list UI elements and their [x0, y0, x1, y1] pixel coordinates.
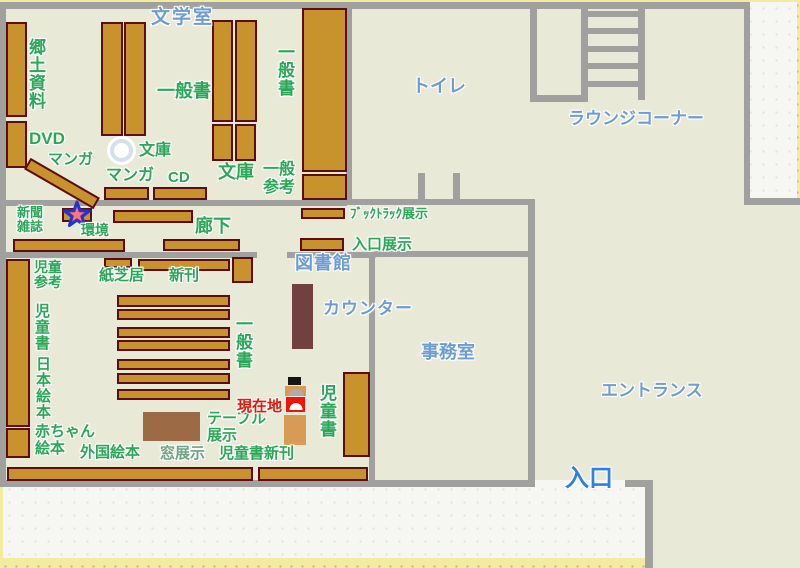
wall: [460, 199, 530, 205]
marker-black: [288, 377, 301, 385]
label-new-books: 新刊: [169, 268, 199, 285]
label-childrens-new-books: 児童書新刊: [219, 446, 294, 463]
label-foreign-picture-books: 外国絵本: [80, 445, 140, 462]
label-entrance-door: 入口: [565, 466, 613, 491]
wall: [530, 2, 537, 102]
label-lounge-corner: ラウンジコーナー: [568, 110, 704, 128]
label-dvd: DVD: [29, 130, 65, 149]
shelf-childrens-right: [343, 372, 370, 457]
label-general-books-top: 一般書: [157, 82, 211, 102]
wall: [6, 200, 347, 206]
label-childrens-books-right: 児童書: [318, 384, 335, 438]
label-kamishibai: 紙芝居: [99, 268, 144, 285]
shelf-manga: [104, 187, 149, 200]
label-manga-lower: マンガ: [106, 167, 154, 185]
wall: [352, 199, 420, 205]
label-booktruck-display: ﾌﾞｯｸﾄﾗｯｸ展示: [350, 207, 428, 221]
shelf-window: [258, 467, 368, 481]
library-floor-map: 郷土資料 DVD マンガ 一般書 文庫 マンガ CD 文庫 一般参考 一般書 新…: [0, 0, 800, 568]
wall: [418, 199, 460, 205]
shelf-entrance-display: [300, 238, 344, 251]
label-entrance-hall: エントランス: [601, 382, 703, 400]
shelf-row: [117, 309, 230, 320]
shelf-small: [232, 257, 253, 283]
stair-step: [588, 46, 638, 52]
label-bunko-pillar: 文庫: [139, 142, 171, 160]
label-kankyo: 環境: [81, 223, 109, 238]
shelf-general-books: [101, 22, 123, 136]
shelf-bunko: [235, 20, 257, 122]
label-current-location: 現在地: [237, 395, 282, 416]
shelf-baby-books: [6, 428, 30, 458]
stair-step: [588, 28, 638, 34]
shelf-dvd: [6, 121, 27, 168]
shelf-kyodo-shiryo: [6, 22, 27, 117]
shelf-cd: [153, 187, 207, 200]
label-corridor: 廊下: [195, 217, 231, 236]
shelf-booktruck-display: [301, 208, 345, 219]
label-office: 事務室: [421, 343, 475, 362]
shelf-bunko: [212, 124, 233, 161]
wall: [744, 198, 800, 205]
label-general-books-right: 一般書: [276, 43, 293, 97]
label-manga-upper: マンガ: [48, 152, 93, 169]
floor-entrance-hall: [535, 198, 800, 480]
marker-white-dome: [289, 403, 302, 410]
office-room-outline: [369, 251, 535, 487]
shelf-general-books: [124, 22, 146, 136]
shelf-general-books-right: [302, 8, 347, 172]
shelf-row: [117, 389, 230, 400]
counter-desk: [292, 284, 313, 349]
stair-step: [588, 81, 638, 87]
shelf-bunko: [212, 20, 233, 122]
wall: [744, 2, 750, 205]
marker-gray-dome: [288, 389, 303, 396]
shelf-childrens-left: [6, 259, 30, 427]
label-toilet: トイレ: [412, 77, 466, 96]
shelf-row: [117, 359, 230, 370]
label-window-display: 窓展示: [160, 446, 205, 463]
shelf-row: [117, 373, 230, 384]
shelf-window: [7, 467, 253, 481]
stair-step: [588, 11, 638, 17]
stair-rail: [638, 2, 645, 100]
shelf-general-reference: [302, 174, 347, 200]
stair-rail: [581, 2, 588, 100]
label-general-books-childrens: 一般書: [234, 315, 251, 369]
current-location-box: [286, 397, 305, 412]
stair-step: [588, 63, 638, 69]
wall: [645, 480, 653, 568]
label-cd: CD: [168, 170, 190, 187]
label-general-reference: 一般参考: [263, 161, 298, 196]
label-counter: カウンター: [323, 300, 413, 318]
label-newspaper-magazine: 新聞雑誌: [17, 206, 46, 235]
floor-entrance-lower: [653, 480, 800, 568]
label-bunko: 文庫: [218, 163, 254, 183]
marker-shelf: [285, 386, 306, 396]
label-childrens-books-left: 児童書: [34, 303, 49, 351]
shelf-bunko: [235, 124, 256, 161]
display-table: [143, 412, 200, 441]
shelf-corridor: [163, 239, 240, 251]
label-literature-room: 文学室: [151, 8, 214, 28]
shelf-row: [117, 295, 230, 307]
marker-stand: [284, 415, 306, 445]
wall: [530, 95, 588, 102]
label-entrance-display: 入口展示: [352, 237, 412, 254]
shelf-row: [117, 327, 230, 338]
shelf-kankyo: [113, 210, 193, 223]
label-japanese-picture-books: 日本絵本: [35, 356, 50, 420]
label-kyodo-shiryo: 郷土資料: [27, 38, 44, 110]
shelf-corridor: [13, 239, 125, 252]
label-library: 図書館: [295, 254, 352, 273]
label-childrens-reference: 児童参考: [34, 260, 65, 291]
shelf-row: [117, 340, 230, 351]
pillar-circle: [110, 139, 133, 162]
